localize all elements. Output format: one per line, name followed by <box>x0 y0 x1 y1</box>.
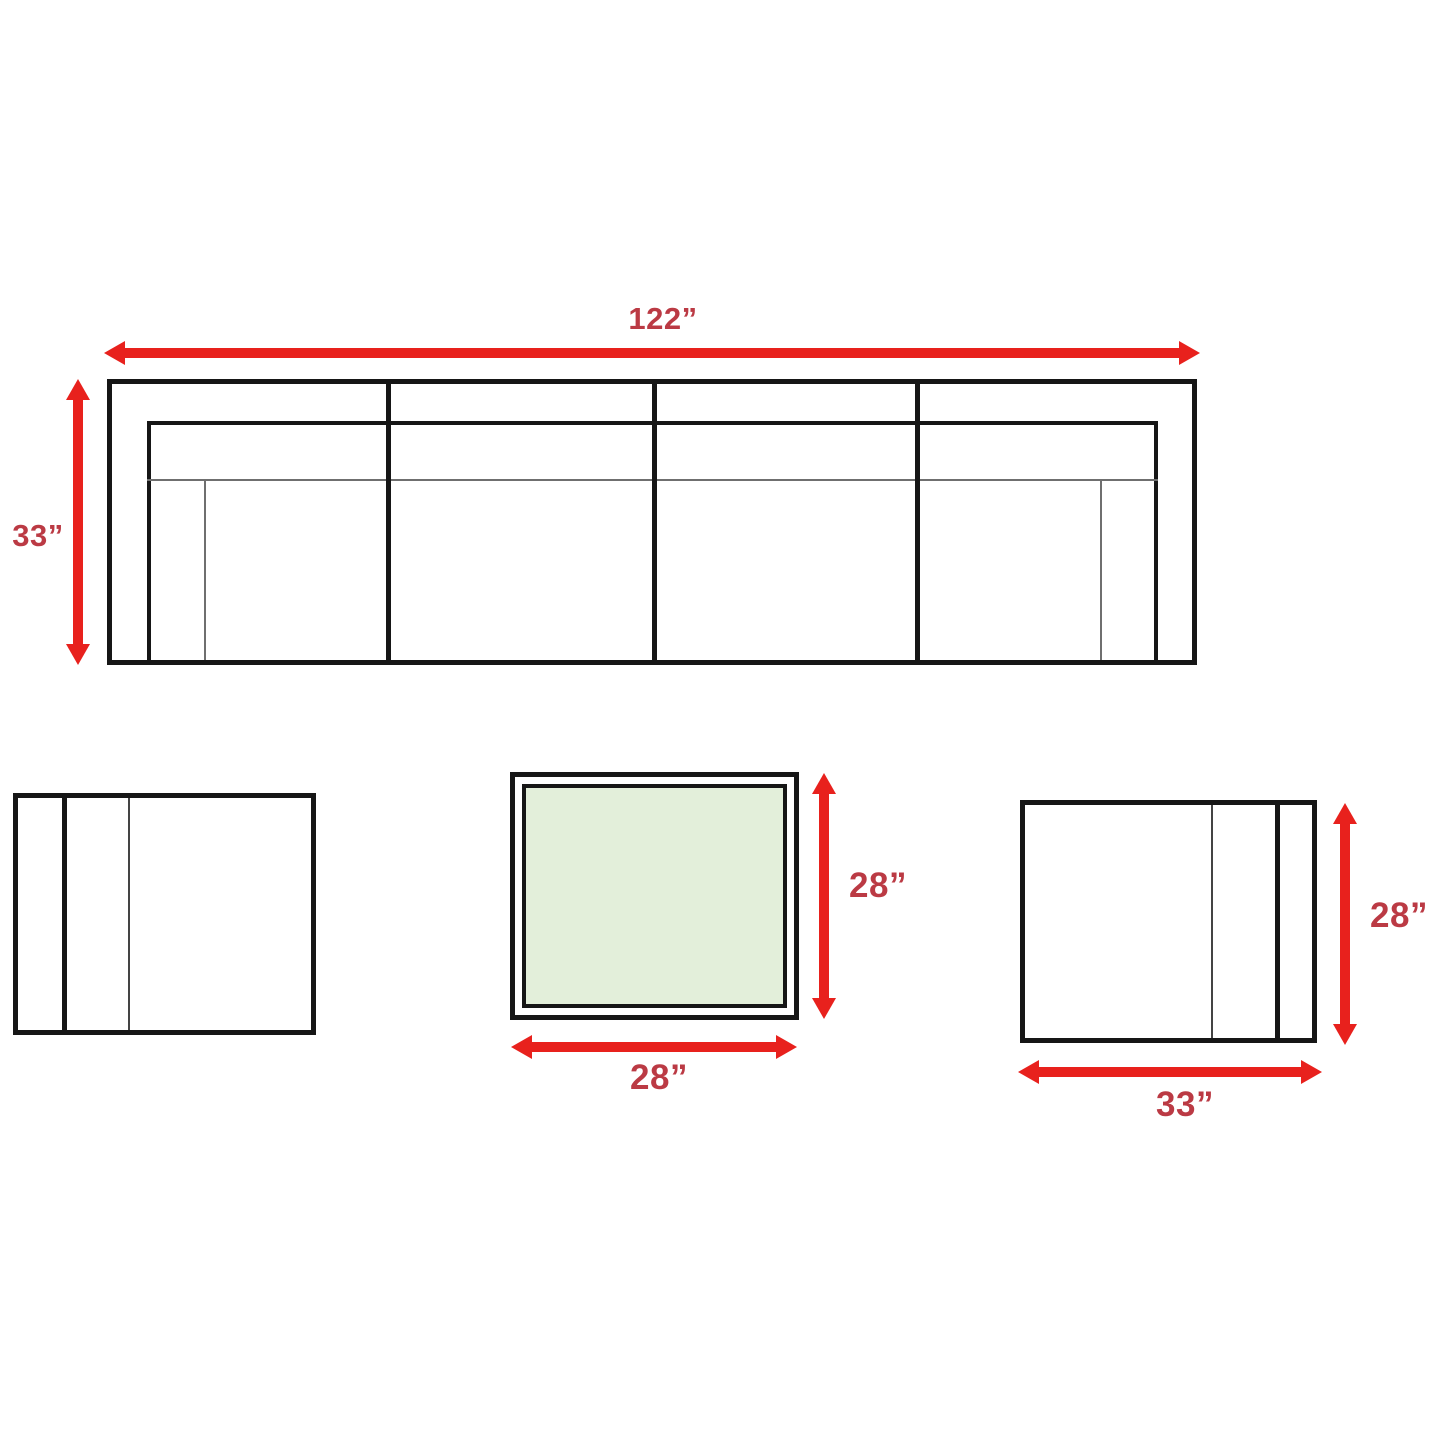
left-chair-top-view <box>13 793 316 1035</box>
arrowhead-left-icon <box>104 341 125 365</box>
sofa-top-view <box>107 379 1197 665</box>
arrowhead-right-icon <box>1179 341 1200 365</box>
arrowhead-up-icon <box>812 773 836 794</box>
left-chair-backrest-line <box>62 798 67 1030</box>
arrowhead-left-icon <box>1018 1060 1039 1084</box>
arrowhead-down-icon <box>1333 1024 1357 1045</box>
coffee-table-depth-label: 28” <box>833 866 923 906</box>
sofa-depth-arrow <box>66 379 90 665</box>
furniture-dimension-diagram: 122” 33” 28” <box>0 0 1445 1445</box>
arrowhead-right-icon <box>776 1035 797 1059</box>
coffee-table-width-arrow <box>511 1035 797 1059</box>
arrowhead-left-icon <box>511 1035 532 1059</box>
arrowhead-up-icon <box>1333 803 1357 824</box>
coffee-table-width-label: 28” <box>614 1058 704 1098</box>
sofa-seat-divider-1 <box>386 384 391 660</box>
sofa-right-armrest-line <box>1100 479 1102 660</box>
sofa-seat-divider-3 <box>915 384 920 660</box>
coffee-table-glass-top <box>522 784 787 1008</box>
arrow-shaft <box>1340 824 1350 1024</box>
arrow-shaft <box>1039 1067 1301 1077</box>
arrowhead-right-icon <box>1301 1060 1322 1084</box>
arrowhead-down-icon <box>66 644 90 665</box>
arrowhead-down-icon <box>812 998 836 1019</box>
sofa-depth-label: 33” <box>0 518 76 554</box>
sofa-seat-divider-2 <box>652 384 657 660</box>
coffee-table-top-view <box>510 772 799 1020</box>
arrow-shaft <box>125 348 1179 358</box>
arrow-shaft <box>532 1042 776 1052</box>
arrowhead-up-icon <box>66 379 90 400</box>
right-chair-width-label: 33” <box>1140 1085 1230 1125</box>
right-chair-seat-line <box>1211 805 1213 1038</box>
sofa-width-arrow <box>104 341 1200 365</box>
arrow-shaft <box>73 400 83 644</box>
right-chair-top-view <box>1020 800 1317 1043</box>
right-chair-backrest-line <box>1275 805 1280 1038</box>
sofa-left-armrest-line <box>204 479 206 660</box>
left-chair-seat-line <box>128 798 130 1030</box>
sofa-width-label: 122” <box>593 301 733 337</box>
arrow-shaft <box>819 794 829 998</box>
right-chair-depth-label: 28” <box>1353 896 1445 936</box>
right-chair-width-arrow <box>1018 1060 1322 1084</box>
